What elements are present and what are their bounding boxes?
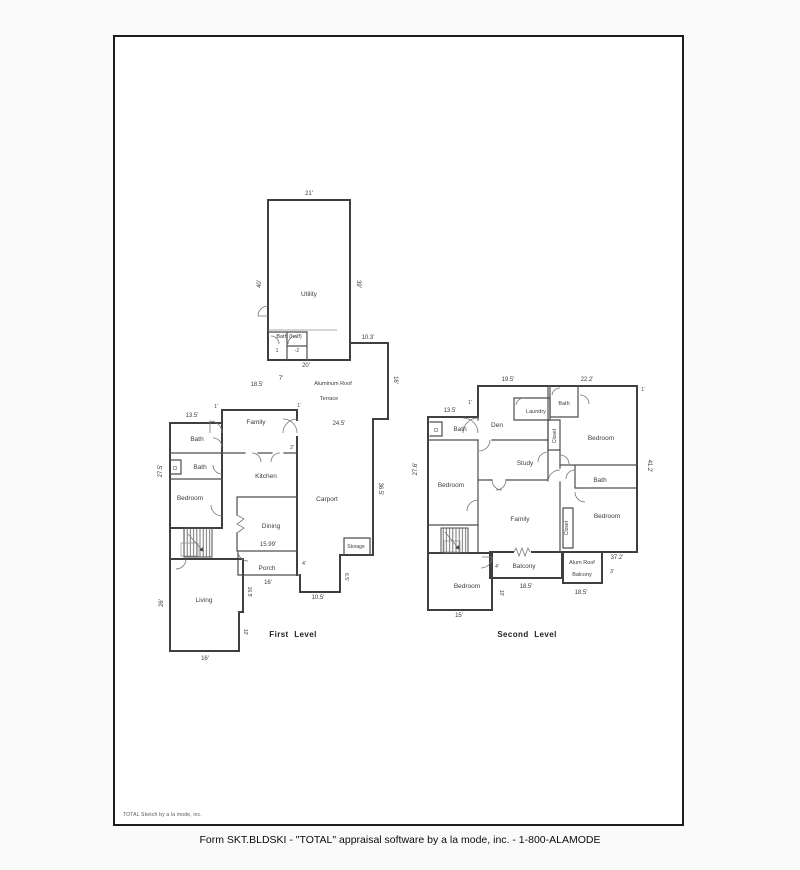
room-label-bath-lower: Bath xyxy=(193,464,207,471)
dim-utility-left: 40' xyxy=(257,280,263,288)
dim-utility-right: 39' xyxy=(355,280,361,288)
room-label-terrace: Terrace xyxy=(320,396,338,402)
room-label-alum-roof-2: Balcony xyxy=(572,572,592,578)
dim-bath-half-bottom: 20' xyxy=(302,363,310,369)
dim-family-top: 18.5' xyxy=(251,382,264,388)
dim-living-right-lower: 10' xyxy=(242,629,248,636)
dim-tick-right: 1' xyxy=(297,403,301,409)
dim-living-right-upper: 16.5' xyxy=(246,587,252,598)
dim-four: 4' xyxy=(302,561,306,567)
second-level-plan: Laundry Bath Cl Bath Den Closet Bedroom … xyxy=(413,377,652,639)
room-label-bath-top: Bath xyxy=(558,401,569,407)
stall-label-2: -2 xyxy=(295,348,300,354)
dim-living-left: 26' xyxy=(159,599,165,607)
room-label-bedroom-left: Bedroom xyxy=(438,482,464,489)
room-label-kitchen: Kitchen xyxy=(255,473,277,480)
dim-three: 3' xyxy=(610,569,614,575)
dim-living-bottom: 16' xyxy=(201,656,209,662)
wall-break-symbol xyxy=(514,548,530,556)
dim-four: 4' xyxy=(495,564,499,570)
room-label-bedroom-bottom: Bedroom xyxy=(454,583,480,590)
dim-tick-top-left: 1' xyxy=(468,400,472,406)
dim-wing-left: 27.6' xyxy=(413,463,419,476)
room-label-aluminum-roof: Aluminum Roof xyxy=(314,381,352,387)
room-label-balcony: Balcony xyxy=(512,563,536,570)
dim-dining-bottom: 15.99' xyxy=(260,542,276,548)
dim-carport-right: 36.5' xyxy=(377,483,383,496)
room-label-family: Family xyxy=(510,516,530,523)
dim-bedroom-bottom: 15' xyxy=(455,613,463,619)
dim-two: 2' xyxy=(290,445,294,451)
floor-plan-sketch: Utility Bath (half) 1 -2 Aluminum Roof T… xyxy=(0,0,800,870)
second-level-walls xyxy=(428,386,637,610)
dim-bottom-right: 37.2' xyxy=(611,555,624,561)
closet-cl-label: Cl xyxy=(434,428,439,434)
room-label-bath-left: Bath xyxy=(453,426,467,433)
dim-bedroom-right: 10' xyxy=(498,590,504,597)
dim-storage-side: 6.5' xyxy=(343,573,349,581)
room-label-utility: Utility xyxy=(301,291,318,298)
first-level-walls xyxy=(170,200,388,651)
first-level-title: First Level xyxy=(269,630,316,639)
room-label-study: Study xyxy=(517,460,534,467)
room-label-bath-mid: Bath xyxy=(593,477,607,484)
dim-tick-top-right: 1' xyxy=(641,387,645,393)
room-label-alum-roof-1: Alum Roof xyxy=(569,560,595,566)
dim-alum-bottom: 18.5' xyxy=(575,590,588,596)
form-footer-text: Form SKT.BLDSKI - "TOTAL" appraisal soft… xyxy=(0,834,800,846)
room-label-carport: Carport xyxy=(316,496,338,503)
stall-label-1: 1 xyxy=(276,348,279,354)
dim-porch-bottom: 16' xyxy=(264,580,272,586)
dim-tick-left: 1' xyxy=(214,404,218,410)
second-level-title: Second Level xyxy=(497,630,556,639)
first-level-dimensions: 21' 40' 39' 20' 10.3' 16' 7' 18.5' 1' 1'… xyxy=(158,191,398,662)
room-label-living: Living xyxy=(196,597,213,604)
dim-wing-top: 13.5' xyxy=(186,413,199,419)
dim-wing-top: 13.5' xyxy=(444,408,457,414)
room-label-bath-half: Bath (half) xyxy=(276,334,302,340)
first-level-plan: Utility Bath (half) 1 -2 Aluminum Roof T… xyxy=(158,191,398,662)
second-level-stairs xyxy=(441,528,468,553)
room-label-closet-lower: Closet xyxy=(564,520,570,535)
room-label-bedroom: Bedroom xyxy=(177,495,203,502)
dim-top-right: 22.2' xyxy=(581,377,594,383)
room-label-porch: Porch xyxy=(259,565,276,572)
room-label-bedroom-right-lower: Bedroom xyxy=(594,513,620,520)
room-label-closet-upper: Closet xyxy=(552,428,558,443)
dim-terrace-width: 24.5' xyxy=(333,421,346,427)
dim-terrace-right: 16' xyxy=(392,376,398,384)
room-label-den: Den xyxy=(491,422,503,429)
dim-step-top: 10.3' xyxy=(362,335,375,341)
room-label-laundry: Laundry xyxy=(526,409,546,415)
room-label-bedroom-right-upper: Bedroom xyxy=(588,435,614,442)
second-level-labels: Laundry Bath Cl Bath Den Closet Bedroom … xyxy=(434,401,621,639)
room-label-storage: Storage xyxy=(347,544,365,550)
dim-top-left: 19.5' xyxy=(502,377,515,383)
dim-wing-left: 27.5' xyxy=(158,465,164,478)
dim-carport-bottom: 10.5' xyxy=(312,595,325,601)
dim-right-side: 41.2' xyxy=(646,460,652,473)
dim-balcony-bottom: 18.5' xyxy=(520,584,533,590)
room-label-family: Family xyxy=(246,419,266,426)
closet-label: Cl xyxy=(173,466,178,472)
room-label-bath-upper: Bath xyxy=(190,436,204,443)
dim-seven: 7' xyxy=(279,376,283,382)
dim-utility-top: 21' xyxy=(305,191,313,197)
room-label-dining: Dining xyxy=(262,523,281,530)
